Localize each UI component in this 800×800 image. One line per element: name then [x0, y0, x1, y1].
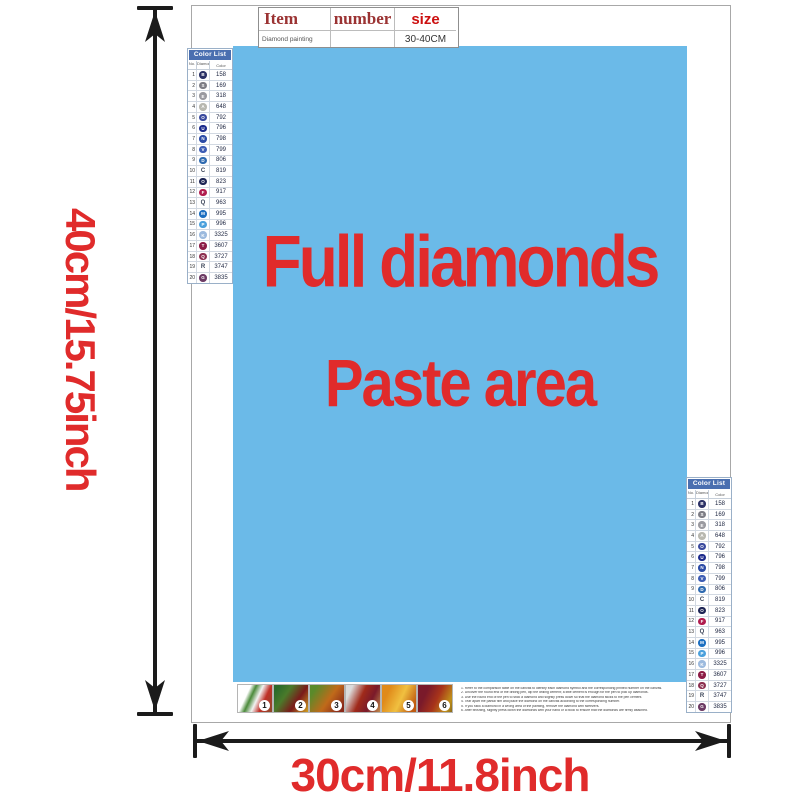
diamond-symbol-letter: C: [700, 597, 704, 603]
dmc-color-code: 799: [709, 576, 731, 582]
color-row-number: 14: [687, 638, 696, 648]
symbol-cell: S: [696, 510, 709, 520]
color-row-number: 16: [687, 659, 696, 669]
color-row: 1B158: [687, 499, 731, 510]
color-row: 18Q3727: [188, 252, 232, 263]
diamond-symbol-letter: C: [201, 168, 205, 174]
color-row: 8V799: [188, 145, 232, 156]
symbol-cell: A: [696, 531, 709, 541]
dmc-color-code: 648: [210, 104, 232, 110]
dmc-color-code: 963: [709, 629, 731, 635]
dmc-color-code: 792: [709, 544, 731, 550]
diamond-symbol-dot: M: [199, 210, 207, 218]
column-header: Diamond: [197, 61, 210, 69]
color-row-number: 2: [687, 510, 696, 520]
dmc-color-code: 798: [709, 565, 731, 571]
diamond-symbol-dot: A: [698, 532, 706, 540]
dmc-color-code: 3747: [709, 693, 731, 699]
symbol-cell: T: [197, 241, 210, 251]
symbol-cell: U: [696, 552, 709, 562]
color-row: 1B158: [188, 70, 232, 81]
color-row: 6U796: [188, 123, 232, 134]
column-header: No.: [188, 61, 197, 69]
color-row-number: 3: [188, 91, 197, 101]
step-tile: 5: [381, 684, 417, 713]
column-header: Color: [709, 492, 731, 497]
step-tiles: 123456: [237, 684, 453, 713]
symbol-cell: M: [197, 209, 210, 219]
color-row-number: 17: [188, 241, 197, 251]
diamond-symbol-dot: O: [698, 543, 706, 551]
color-row: 2S169: [687, 510, 731, 521]
color-list-column-headers: No.DiamondColor: [687, 490, 731, 499]
step-tile: 6: [417, 684, 453, 713]
color-row-number: 10: [188, 166, 197, 176]
diamond-symbol-dot: B: [698, 500, 706, 508]
dmc-color-code: 819: [210, 168, 232, 174]
diamond-symbol-dot: Q: [199, 253, 207, 261]
diamond-symbol-dot: A: [199, 103, 207, 111]
dmc-color-code: 823: [210, 179, 232, 185]
symbol-cell: O: [197, 177, 210, 187]
dmc-color-code: 806: [709, 586, 731, 592]
symbol-cell: P: [197, 220, 210, 230]
step-number-badge: 5: [403, 700, 414, 711]
color-row-number: 7: [687, 563, 696, 573]
step-tile: 3: [309, 684, 345, 713]
symbol-cell: A: [197, 102, 210, 112]
item-info-table: Item number size Diamond painting 30-40C…: [258, 7, 459, 48]
symbol-cell: K: [696, 659, 709, 669]
color-row-number: 18: [188, 252, 197, 262]
dmc-color-code: 963: [210, 200, 232, 206]
dmc-color-code: 169: [709, 512, 731, 518]
diamond-symbol-dot: N: [698, 564, 706, 572]
symbol-cell: C: [197, 166, 210, 176]
symbol-cell: C: [696, 595, 709, 605]
color-row-number: 7: [188, 134, 197, 144]
dmc-color-code: 806: [210, 157, 232, 163]
diamond-symbol-dot: S: [698, 511, 706, 519]
color-list-title: Color List: [189, 50, 231, 60]
symbol-cell: E: [696, 520, 709, 530]
color-row: 6U796: [687, 552, 731, 563]
diamond-symbol-letter: R: [700, 693, 704, 699]
diamond-symbol-dot: O: [199, 114, 207, 122]
column-header: No.: [687, 490, 696, 498]
color-row-number: 13: [687, 627, 696, 637]
diamond-symbol-dot: N: [199, 135, 207, 143]
color-row: 10C819: [687, 595, 731, 606]
dmc-color-code: 318: [709, 522, 731, 528]
color-row-number: 16: [188, 230, 197, 240]
color-row: 15P996: [188, 220, 232, 231]
diamond-symbol-dot: K: [698, 660, 706, 668]
dmc-color-code: 792: [210, 115, 232, 121]
color-row: 3E318: [687, 520, 731, 531]
diamond-symbol-dot: E: [199, 92, 207, 100]
symbol-cell: K: [197, 230, 210, 240]
symbol-cell: Q: [197, 252, 210, 262]
diamond-symbol-letter: Q: [700, 629, 705, 635]
step-number-badge: 4: [367, 700, 378, 711]
symbol-cell: V: [696, 574, 709, 584]
color-row-number: 14: [188, 209, 197, 219]
step-tile: 4: [345, 684, 381, 713]
dmc-color-code: 169: [210, 83, 232, 89]
diamond-symbol-dot: B: [199, 71, 207, 79]
diamond-symbol-dot: P: [698, 650, 706, 658]
color-row: 3E318: [188, 91, 232, 102]
color-row-number: 6: [687, 552, 696, 562]
step-number-badge: 3: [331, 700, 342, 711]
dmc-color-code: 917: [709, 618, 731, 624]
diamond-symbol-dot: F: [199, 189, 207, 197]
dmc-color-code: 3607: [709, 672, 731, 678]
symbol-cell: R: [197, 262, 210, 272]
color-row-number: 15: [687, 649, 696, 659]
color-row: 5O792: [687, 542, 731, 553]
symbol-cell: O: [696, 606, 709, 616]
color-row: 12F917: [188, 188, 232, 199]
symbol-cell: U: [197, 123, 210, 133]
diamond-symbol-dot: O: [199, 178, 207, 186]
diamond-symbol-dot: S: [199, 82, 207, 90]
symbol-cell: E: [197, 91, 210, 101]
symbol-cell: V: [197, 145, 210, 155]
color-row-number: 5: [188, 113, 197, 123]
symbol-cell: P: [696, 649, 709, 659]
symbol-cell: T: [696, 670, 709, 680]
color-row: 20G3835: [188, 273, 232, 283]
diamond-symbol-dot: D: [199, 157, 207, 165]
symbol-cell: B: [197, 70, 210, 80]
color-row-number: 5: [687, 542, 696, 552]
diamond-symbol-dot: T: [199, 242, 207, 250]
color-row: 4A648: [188, 102, 232, 113]
color-row-number: 9: [687, 585, 696, 595]
color-row-number: 11: [188, 177, 197, 187]
paste-area-line1: Full diamonds: [233, 218, 687, 303]
diamond-symbol-dot: U: [698, 554, 706, 562]
size-header: size: [395, 8, 456, 31]
diamond-symbol-dot: G: [199, 274, 207, 282]
height-dimension-label: 40cm/15.75inch: [56, 208, 104, 491]
dmc-color-code: 799: [210, 147, 232, 153]
symbol-cell: F: [197, 188, 210, 198]
color-row-number: 2: [188, 81, 197, 91]
dmc-color-code: 158: [709, 501, 731, 507]
color-row-number: 1: [188, 70, 197, 80]
color-row-number: 9: [188, 156, 197, 166]
diamond-symbol-dot: G: [698, 703, 706, 711]
dmc-color-code: 3747: [210, 264, 232, 270]
color-row: 12F917: [687, 617, 731, 628]
diamond-symbol-dot: P: [199, 221, 207, 229]
instruction-text: 1. Refer to the comparison table on the …: [461, 687, 699, 713]
dmc-color-code: 796: [709, 554, 731, 560]
instruction-line: 5. If you stick a diamond in a wrong are…: [461, 705, 699, 709]
diamond-symbol-letter: Q: [201, 200, 206, 206]
instruction-line: 2. Uncover the round end of the drilling…: [461, 691, 699, 695]
step-number-badge: 6: [439, 700, 450, 711]
color-row: 17T3607: [188, 241, 232, 252]
color-row: 17T3607: [687, 670, 731, 681]
color-row: 19R3747: [188, 262, 232, 273]
color-row: 14M995: [188, 209, 232, 220]
dmc-color-code: 796: [210, 125, 232, 131]
dmc-color-code: 158: [210, 72, 232, 78]
column-header: Color: [210, 63, 232, 68]
width-dimension-label: 30cm/11.8inch: [240, 748, 640, 800]
symbol-cell: Q: [696, 627, 709, 637]
size-value: 30-40CM: [395, 31, 456, 47]
diamond-symbol-dot: T: [698, 671, 706, 679]
instruction-line: 3. Use the round end of the pen to stick…: [461, 696, 699, 700]
color-row-number: 3: [687, 520, 696, 530]
dmc-color-code: 3835: [210, 275, 232, 281]
color-row: 9D806: [188, 156, 232, 167]
dmc-color-code: 995: [709, 640, 731, 646]
symbol-cell: N: [696, 563, 709, 573]
color-row-number: 8: [687, 574, 696, 584]
color-row: 2S169: [188, 81, 232, 92]
diamond-symbol-letter: R: [201, 264, 205, 270]
dmc-color-code: 3727: [709, 683, 731, 689]
dmc-color-code: 3325: [210, 232, 232, 238]
symbol-cell: O: [197, 113, 210, 123]
color-row: 9D806: [687, 585, 731, 596]
color-list-title: Color List: [688, 479, 730, 489]
dmc-color-code: 996: [709, 650, 731, 656]
color-row: 11O823: [188, 177, 232, 188]
number-header: number: [331, 8, 395, 31]
color-row-number: 8: [188, 145, 197, 155]
column-header: Diamond: [696, 490, 709, 498]
color-row: 7N798: [687, 563, 731, 574]
symbol-cell: O: [696, 542, 709, 552]
color-row: 13Q963: [687, 627, 731, 638]
color-row: 16K3325: [188, 230, 232, 241]
dmc-color-code: 823: [709, 608, 731, 614]
item-value: Diamond painting: [259, 31, 331, 47]
color-row: 5O792: [188, 113, 232, 124]
symbol-cell: D: [197, 156, 210, 166]
symbol-cell: N: [197, 134, 210, 144]
dmc-color-code: 995: [210, 211, 232, 217]
color-row-number: 10: [687, 595, 696, 605]
dmc-color-code: 3325: [709, 661, 731, 667]
color-row: 14M995: [687, 638, 731, 649]
diamond-symbol-dot: E: [698, 521, 706, 529]
color-row-number: 15: [188, 220, 197, 230]
dmc-color-code: 819: [709, 597, 731, 603]
diamond-symbol-dot: V: [199, 146, 207, 154]
height-dimension-arrow: [133, 4, 177, 718]
symbol-cell: D: [696, 585, 709, 595]
step-tile: 1: [237, 684, 273, 713]
step-number-badge: 2: [295, 700, 306, 711]
color-row: 7N798: [188, 134, 232, 145]
color-row: 13Q963: [188, 198, 232, 209]
diamond-symbol-dot: K: [199, 231, 207, 239]
diamond-symbol-dot: Q: [698, 682, 706, 690]
symbol-cell: F: [696, 617, 709, 627]
dmc-color-code: 3727: [210, 254, 232, 260]
color-row: 10C819: [188, 166, 232, 177]
color-row-number: 6: [188, 123, 197, 133]
diamond-symbol-dot: M: [698, 639, 706, 647]
color-row: 15P996: [687, 649, 731, 660]
instruction-line: 1. Refer to the comparison table on the …: [461, 687, 699, 691]
color-row-number: 19: [188, 262, 197, 272]
color-row: 16K3325: [687, 659, 731, 670]
item-header: Item: [259, 8, 331, 31]
instruction-line: 4. Tear apart the partial film and place…: [461, 700, 699, 704]
diamond-symbol-dot: O: [698, 607, 706, 615]
color-row-number: 13: [188, 198, 197, 208]
dmc-color-code: 917: [210, 189, 232, 195]
color-row-number: 4: [687, 531, 696, 541]
color-row-number: 11: [687, 606, 696, 616]
color-row-number: 1: [687, 499, 696, 509]
dmc-color-code: 3835: [709, 704, 731, 710]
symbol-cell: B: [696, 499, 709, 509]
color-row-number: 4: [188, 102, 197, 112]
diamond-symbol-dot: D: [698, 586, 706, 594]
instruction-line: 6. After finishing, slightly press down …: [461, 709, 699, 713]
color-row-number: 12: [188, 188, 197, 198]
color-row: 4A648: [687, 531, 731, 542]
paste-area-line2: Paste area: [233, 345, 687, 422]
dmc-color-code: 996: [210, 221, 232, 227]
step-number-badge: 1: [259, 700, 270, 711]
symbol-cell: S: [197, 81, 210, 91]
diamond-symbol-dot: U: [199, 125, 207, 133]
color-list-column-headers: No.DiamondColor: [188, 61, 232, 70]
dmc-color-code: 318: [210, 93, 232, 99]
dmc-color-code: 798: [210, 136, 232, 142]
dmc-color-code: 648: [709, 533, 731, 539]
color-row-number: 17: [687, 670, 696, 680]
number-value: [331, 31, 395, 47]
color-list-left: Color ListNo.DiamondColor1B1582S1693E318…: [187, 48, 233, 284]
diamond-symbol-dot: F: [698, 618, 706, 626]
product-image: Full diamonds Paste area Item number siz…: [0, 0, 800, 800]
symbol-cell: Q: [197, 198, 210, 208]
symbol-cell: G: [197, 273, 210, 283]
color-row-number: 20: [188, 273, 197, 283]
color-row-number: 12: [687, 617, 696, 627]
color-row: 8V799: [687, 574, 731, 585]
step-tile: 2: [273, 684, 309, 713]
color-list-right: Color ListNo.DiamondColor1B1582S1693E318…: [686, 477, 732, 713]
diamond-symbol-dot: V: [698, 575, 706, 583]
symbol-cell: M: [696, 638, 709, 648]
dmc-color-code: 3607: [210, 243, 232, 249]
color-row: 11O823: [687, 606, 731, 617]
